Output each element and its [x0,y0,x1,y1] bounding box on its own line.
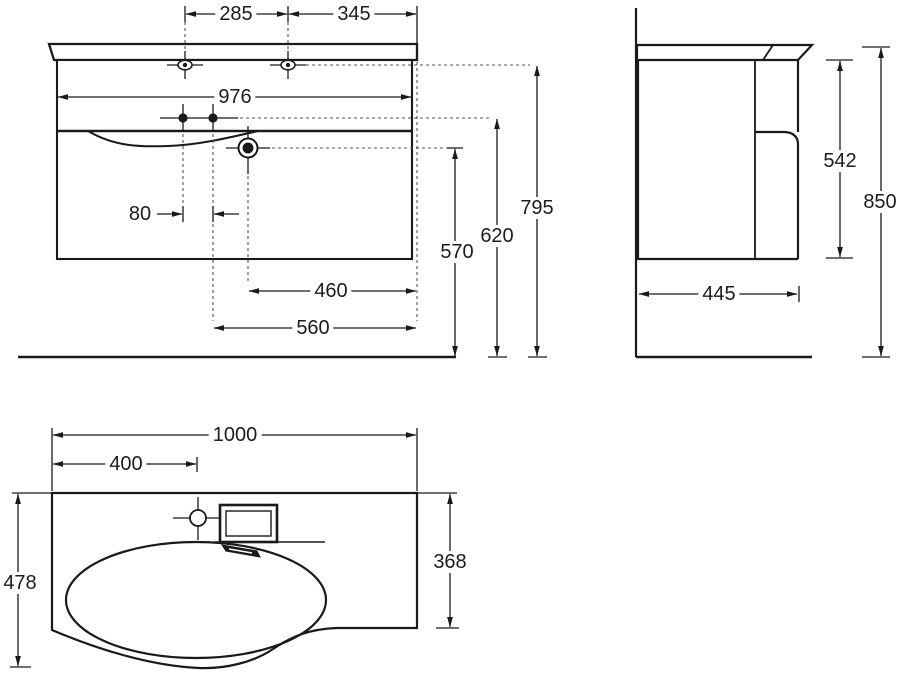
side-cabinet-outline [638,60,798,259]
side-countertop [637,45,812,60]
technical-drawing: 285 345 976 80 460 560 570 620 795 542 8… [0,0,900,673]
dim-label-drain-height: 570 [436,241,477,263]
dim-label-tap-offset: 400 [105,453,146,475]
dim-label-total-height: 850 [859,191,900,213]
side-drawer-gap [755,132,798,259]
plan-view [52,493,417,668]
dim-label-faucet-height: 620 [476,225,517,247]
dim-label-depth: 445 [698,283,739,305]
dim-label-drain-offset: 460 [310,280,351,302]
dim-label-cabinet-width: 976 [214,86,255,108]
dim-label-faucet-offset: 560 [292,317,333,339]
side-dimension-lines [639,47,890,357]
dim-label-cabinet-height: 542 [819,150,860,172]
front-countertop [49,44,417,60]
dim-label-total-width: 1000 [209,424,262,446]
dim-label-faucet-hole-spacing: 80 [125,203,155,225]
dim-label-hole-spacing-right: 345 [333,3,374,25]
dim-label-left-depth: 478 [0,572,41,594]
dim-label-right-depth: 368 [429,551,470,573]
dim-label-hole-spacing-left: 285 [215,3,256,25]
dim-label-mount-height: 795 [516,197,557,219]
